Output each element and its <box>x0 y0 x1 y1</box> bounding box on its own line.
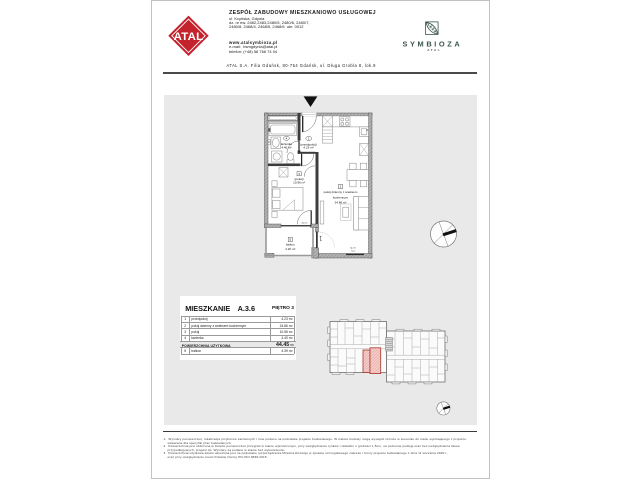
svg-text:kuchennym: kuchennym <box>333 195 349 199</box>
svg-text:SYMBIOZA: SYMBIOZA <box>403 39 463 48</box>
svg-text:ATAL: ATAL <box>174 31 204 43</box>
svg-text:hp=0: hp=0 <box>351 250 355 252</box>
svg-text:10.96 m²: 10.96 m² <box>293 180 305 184</box>
svg-text:4.23 m²: 4.23 m² <box>303 146 313 150</box>
svg-text:ATAL: ATAL <box>427 48 441 52</box>
svg-text:Np=90: Np=90 <box>350 247 356 249</box>
svg-text:pokój dzienny z aneksem: pokój dzienny z aneksem <box>324 190 358 194</box>
svg-text:Np=90: Np=90 <box>302 222 308 224</box>
svg-text:24.86 m²: 24.86 m² <box>335 200 347 204</box>
svg-text:4.20 m²: 4.20 m² <box>285 247 295 251</box>
svg-text:4.40 m²: 4.40 m² <box>281 145 291 149</box>
